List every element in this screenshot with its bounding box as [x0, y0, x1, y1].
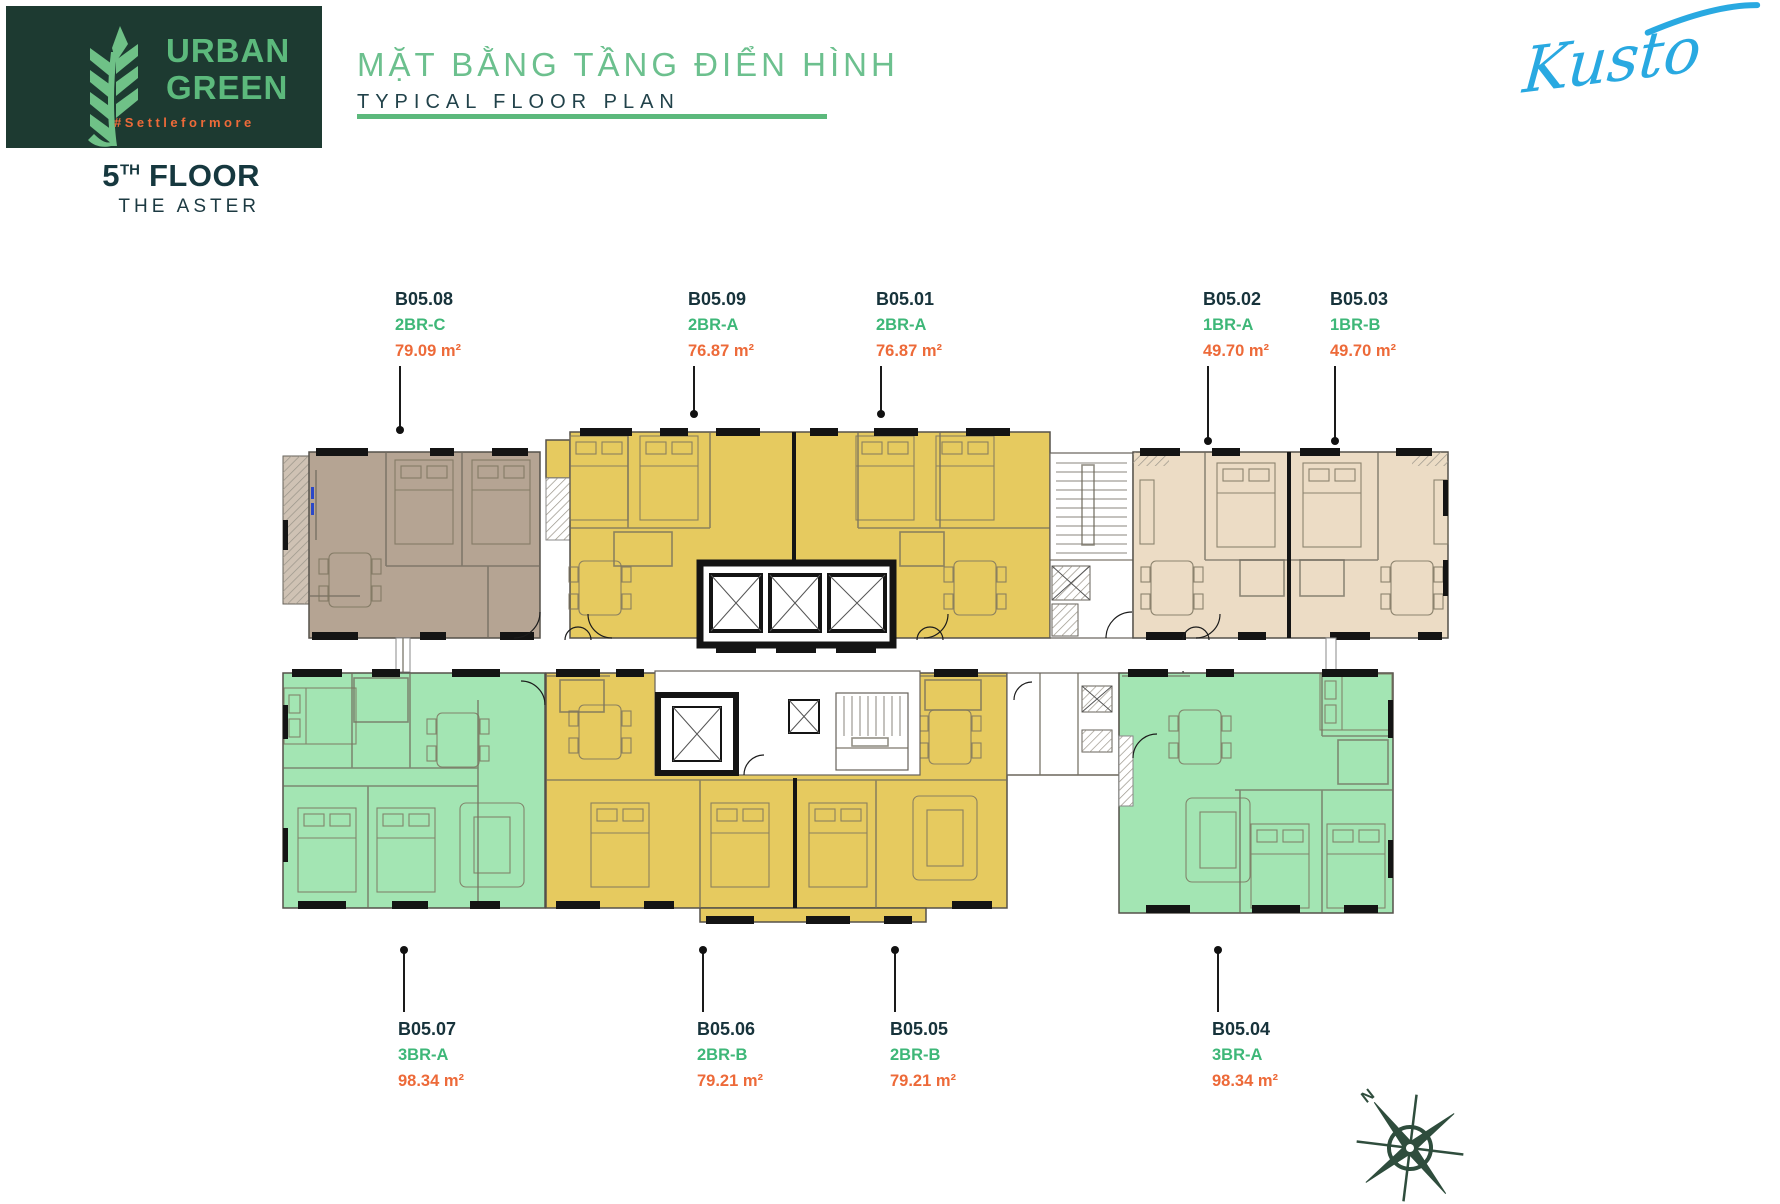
unit-label: B05.08 2BR-C 79.09 m²	[395, 286, 461, 364]
unit-region-B05-08	[283, 448, 540, 640]
unit-id: B05.03	[1330, 286, 1396, 312]
unit-type: 1BR-A	[1203, 312, 1269, 338]
compass-rose: N	[1340, 1080, 1480, 1204]
unit-label: B05.02 1BR-A 49.70 m²	[1203, 286, 1269, 364]
leader-dot	[400, 946, 408, 954]
unit-id: B05.04	[1212, 1016, 1278, 1042]
unit-type: 1BR-B	[1330, 312, 1396, 338]
page: URBAN GREEN #Settleformore MẶT BẰNG TẦNG…	[0, 0, 1780, 1204]
unit-type: 2BR-A	[876, 312, 942, 338]
unit-region-B05-04	[1119, 669, 1393, 913]
leader-line	[702, 950, 704, 1012]
unit-id: B05.07	[398, 1016, 464, 1042]
unit-area: 76.87 m²	[876, 338, 942, 364]
unit-label: B05.01 2BR-A 76.87 m²	[876, 286, 942, 364]
unit-id: B05.06	[697, 1016, 763, 1042]
unit-id: B05.02	[1203, 286, 1269, 312]
ac-ledge	[546, 440, 570, 540]
unit-id: B05.08	[395, 286, 461, 312]
unit-divider	[793, 778, 797, 908]
leader-dot	[699, 946, 707, 954]
unit-type: 2BR-B	[697, 1042, 763, 1068]
unit-type: 2BR-C	[395, 312, 461, 338]
leader-dot	[1331, 437, 1339, 445]
leader-dot	[891, 946, 899, 954]
unit-label: B05.03 1BR-B 49.70 m²	[1330, 286, 1396, 364]
leader-dot	[1214, 946, 1222, 954]
leader-line	[403, 950, 405, 1012]
unit-area: 79.21 m²	[890, 1068, 956, 1094]
leader-dot	[1204, 437, 1212, 445]
unit-area: 49.70 m²	[1203, 338, 1269, 364]
leader-line	[1207, 366, 1209, 441]
unit-id: B05.05	[890, 1016, 956, 1042]
unit-type: 2BR-B	[890, 1042, 956, 1068]
unit-label: B05.06 2BR-B 79.21 m²	[697, 1016, 763, 1094]
leader-line	[894, 950, 896, 1012]
unit-label: B05.04 3BR-A 98.34 m²	[1212, 1016, 1278, 1094]
leader-dot	[877, 410, 885, 418]
unit-area: 49.70 m²	[1330, 338, 1396, 364]
unit-divider	[1287, 452, 1291, 638]
unit-region-B05-02-and-B05-03	[1133, 448, 1448, 640]
leader-dot	[396, 426, 404, 434]
unit-type: 2BR-A	[688, 312, 754, 338]
unit-region-B05-07	[283, 669, 545, 909]
leader-line	[1334, 366, 1336, 441]
unit-id: B05.09	[688, 286, 754, 312]
elevator-core	[700, 563, 893, 653]
unit-area: 76.87 m²	[688, 338, 754, 364]
stairwell-top	[1050, 453, 1133, 638]
leader-line	[693, 366, 695, 414]
unit-type: 3BR-A	[398, 1042, 464, 1068]
leader-line	[399, 366, 401, 430]
unit-area: 79.09 m²	[395, 338, 461, 364]
leader-line	[1217, 950, 1219, 1012]
service-core-bottom	[655, 671, 920, 775]
unit-label: B05.07 3BR-A 98.34 m²	[398, 1016, 464, 1094]
unit-area: 98.34 m²	[1212, 1068, 1278, 1094]
service-core-right	[1007, 673, 1119, 775]
unit-label: B05.05 2BR-B 79.21 m²	[890, 1016, 956, 1094]
unit-type: 3BR-A	[1212, 1042, 1278, 1068]
unit-area: 79.21 m²	[697, 1068, 763, 1094]
leader-line	[880, 366, 882, 414]
leader-dot	[690, 410, 698, 418]
unit-id: B05.01	[876, 286, 942, 312]
unit-label: B05.09 2BR-A 76.87 m²	[688, 286, 754, 364]
unit-area: 98.34 m²	[398, 1068, 464, 1094]
unit-divider	[792, 432, 796, 568]
